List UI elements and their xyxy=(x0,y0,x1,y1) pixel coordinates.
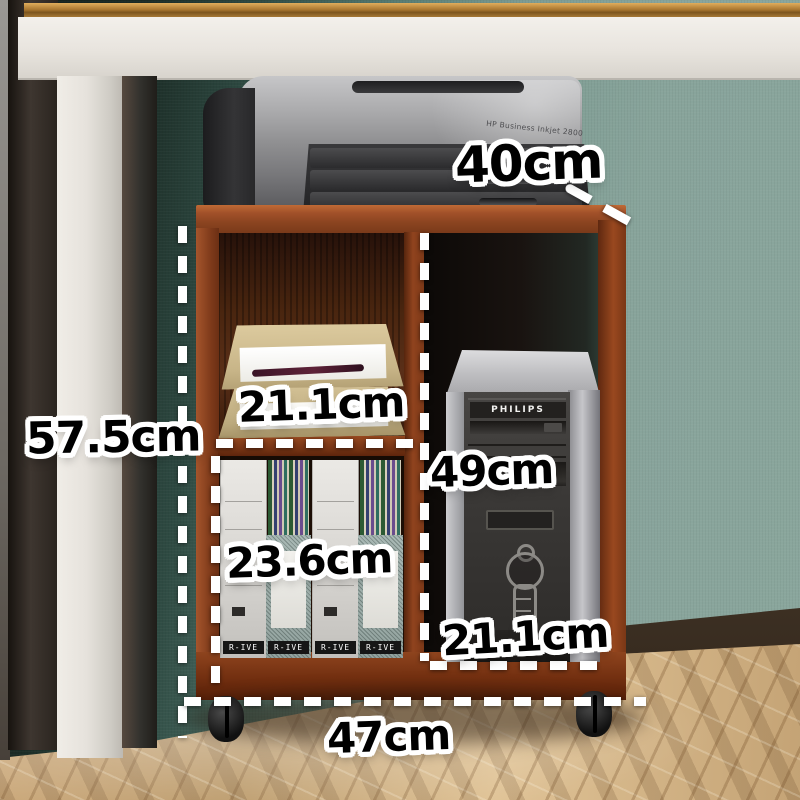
desk-white-fascia xyxy=(18,17,800,80)
file-box-label: R-IVE xyxy=(315,641,356,654)
dimension-label-overall-width: 47cm xyxy=(326,710,451,763)
file-box-label: R-IVE xyxy=(268,641,309,654)
printer-top-slot xyxy=(352,81,524,93)
computer-eject-button xyxy=(544,423,562,432)
product-photo-scene: HP Business Inkjet 2800 R-IVE R-IVE R-IV… xyxy=(0,0,800,800)
computer-slot xyxy=(486,510,554,530)
dimension-label-tower-height: 49cm xyxy=(429,444,554,497)
folder-spines xyxy=(360,460,401,539)
file-box-label: R-IVE xyxy=(223,641,264,654)
dimension-label-shelf-width: 21.1cm xyxy=(237,377,405,432)
file-box-mark xyxy=(324,607,337,616)
measure-line-height xyxy=(178,226,187,738)
file-box-label: R-IVE xyxy=(360,641,401,654)
printer-left-endcap xyxy=(203,88,255,214)
measure-line-right-compartment-height xyxy=(420,233,429,661)
folder-spines xyxy=(268,460,309,539)
desk-dark-leg xyxy=(8,0,58,750)
dimension-label-depth: 40cm xyxy=(454,131,603,194)
measure-line-shelf-width xyxy=(216,439,414,448)
computer-brand-label: PHILIPS xyxy=(470,402,566,418)
computer-keyhole-notch xyxy=(516,598,531,600)
measure-line-file-compartment-height xyxy=(211,456,220,688)
file-box-mark xyxy=(232,607,245,616)
dimension-label-file-compartment-height: 23.6cm xyxy=(225,533,393,588)
cabinet-top-panel xyxy=(196,205,626,233)
computer-bezel-line xyxy=(468,398,566,400)
dimension-label-tower-width: 21.1cm xyxy=(441,608,610,666)
measure-line-overall-width xyxy=(184,697,646,706)
dimension-label-overall-height: 57.5cm xyxy=(26,410,201,464)
